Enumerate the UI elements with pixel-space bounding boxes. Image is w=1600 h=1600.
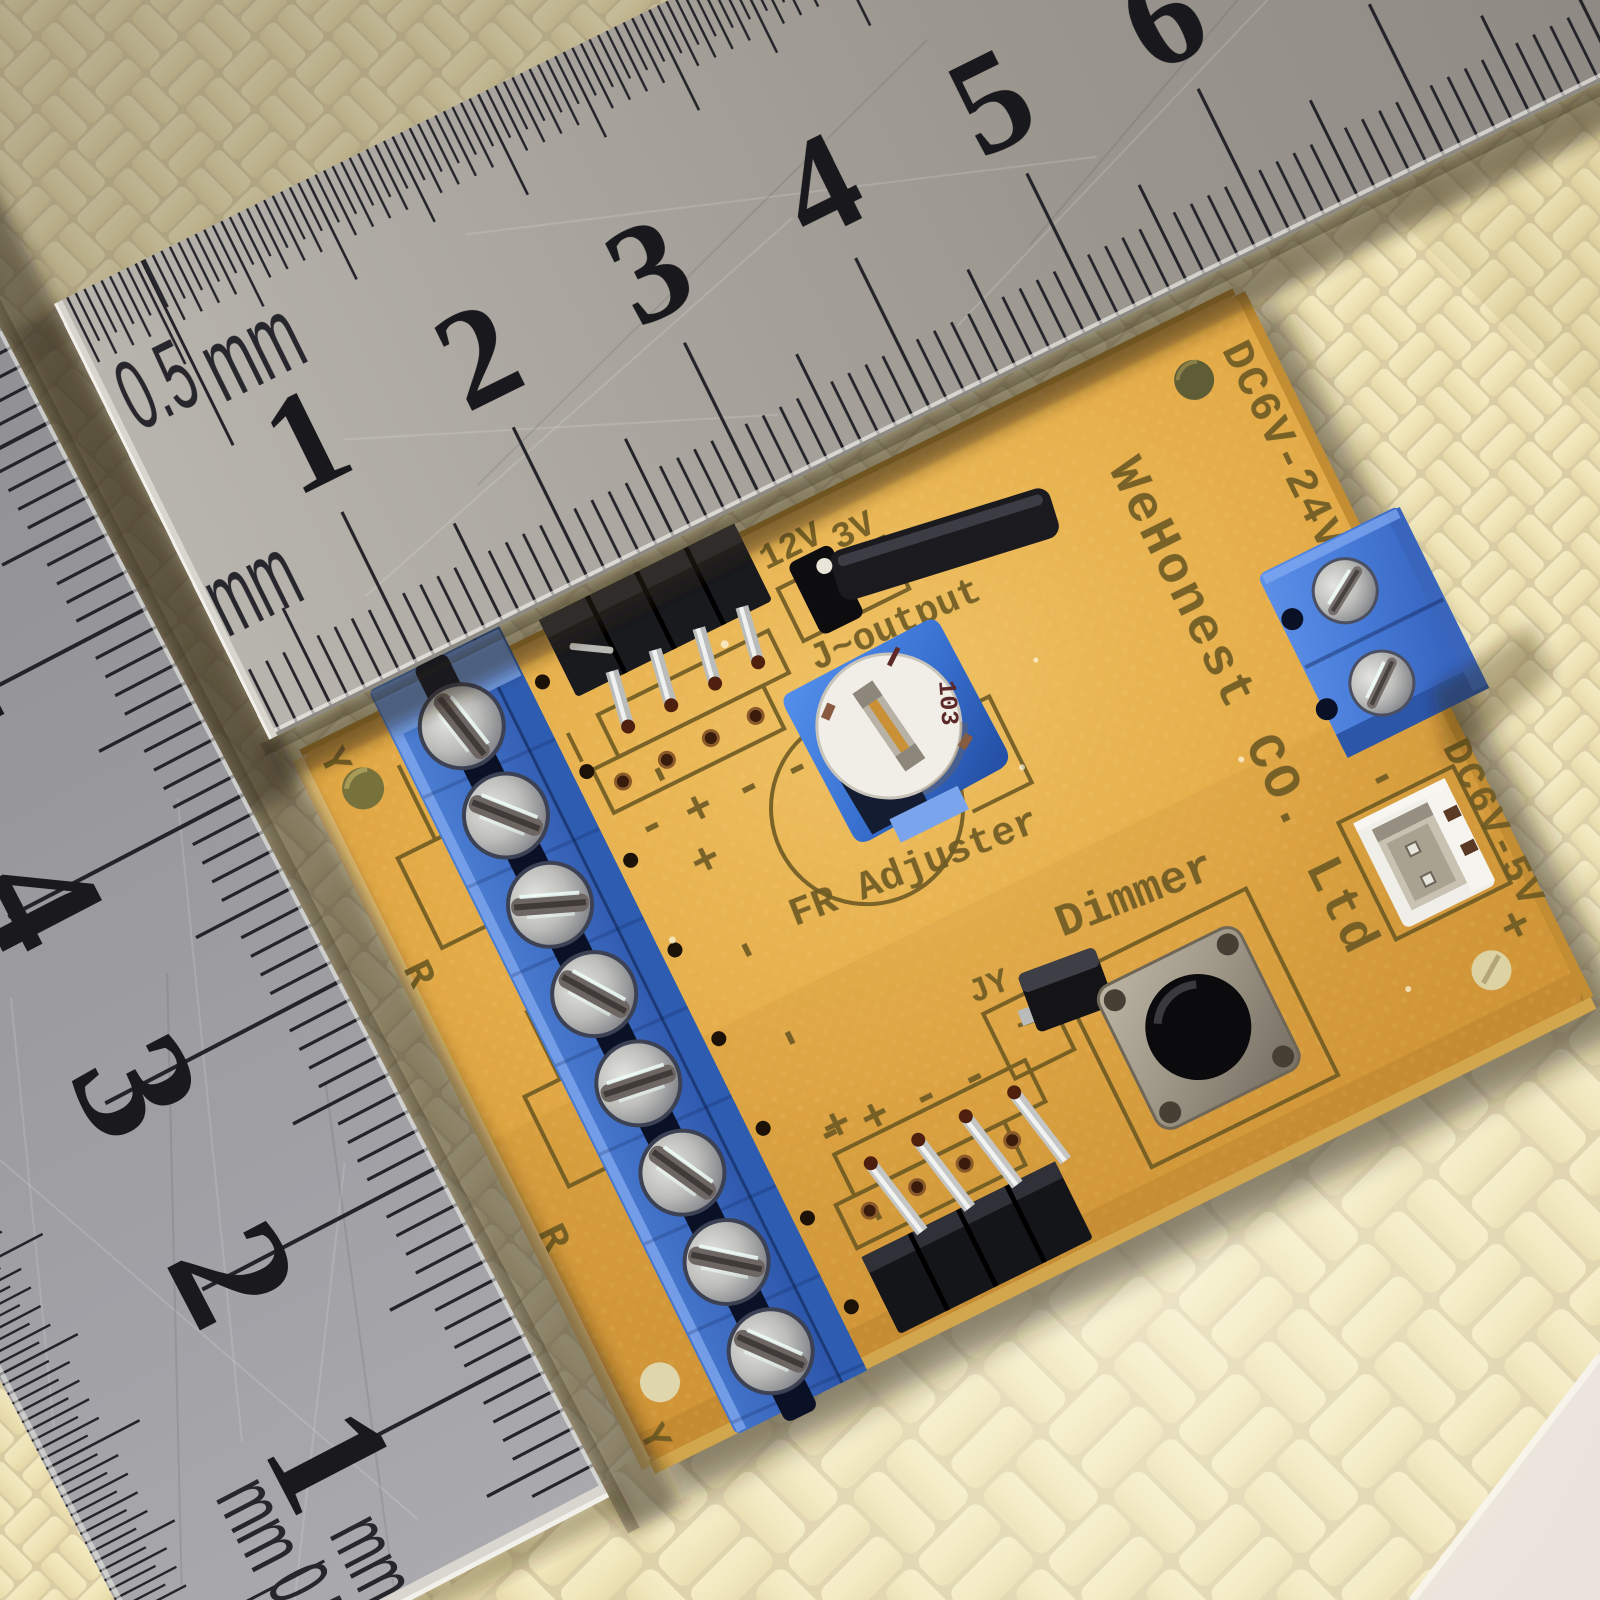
svg-text:103: 103 bbox=[931, 679, 963, 726]
